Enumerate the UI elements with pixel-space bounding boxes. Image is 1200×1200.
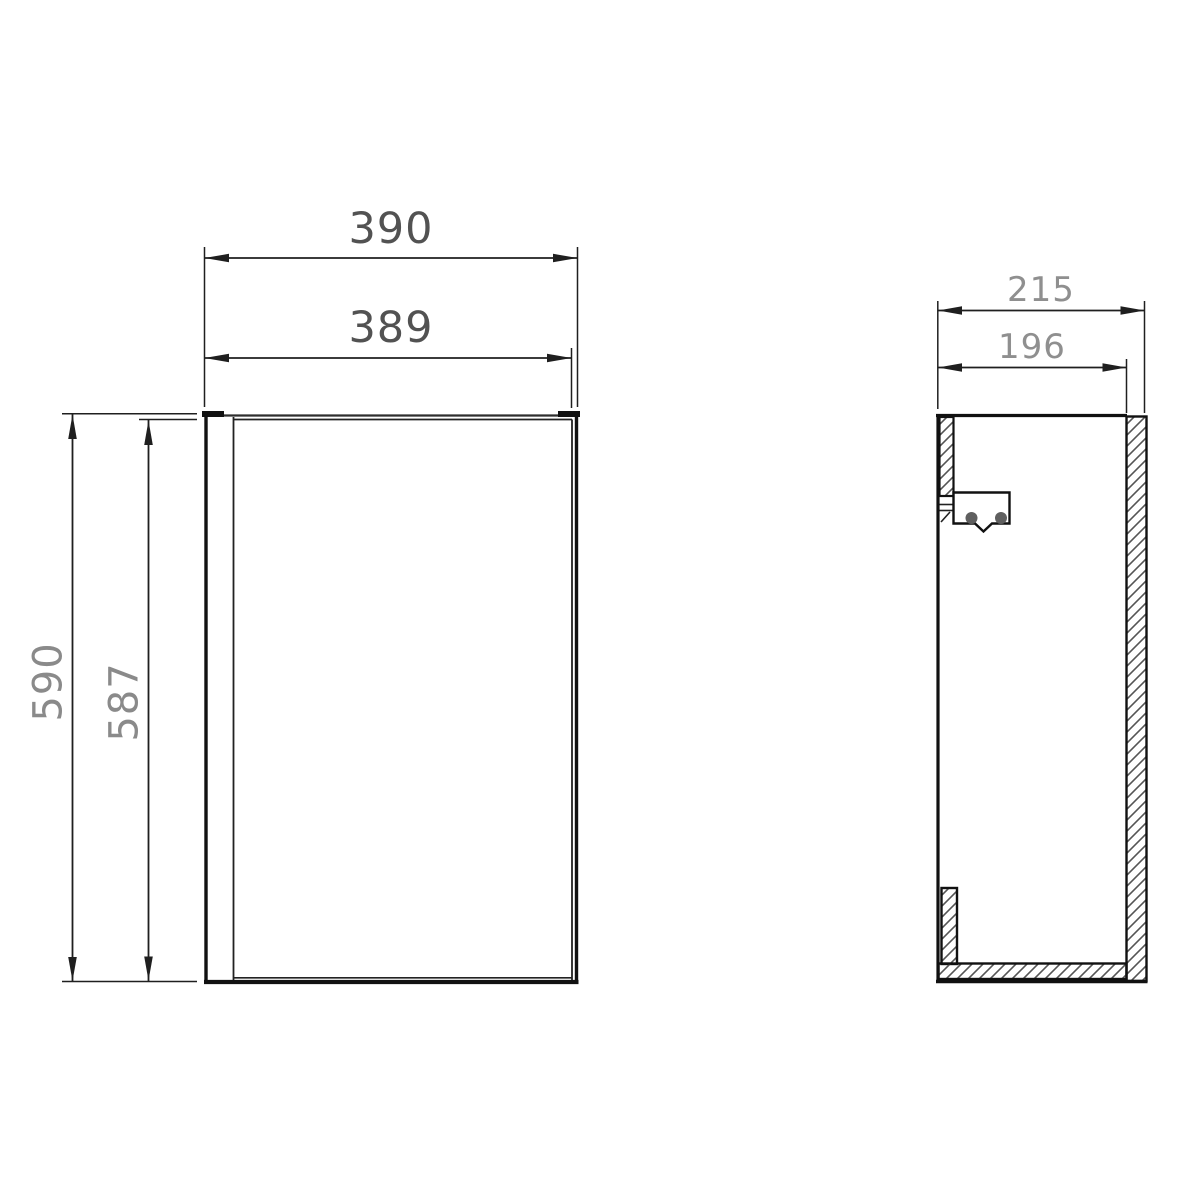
hinge-body (954, 493, 1010, 532)
side-bottom-panel-section (939, 964, 1127, 980)
dim-side-depth-inner: 196 (938, 327, 1127, 413)
dim-front-width-inner: 389 (205, 303, 572, 408)
dim-front-height-inner: 587 (102, 420, 198, 982)
arrow-down-icon (144, 957, 153, 981)
dim-value-front-width-inner: 389 (348, 303, 433, 353)
dim-value-side-depth-outer: 215 (1007, 270, 1075, 310)
dim-value-front-height-outer: 590 (26, 642, 72, 721)
side-view: 215 196 (936, 270, 1148, 982)
arrow-up-icon (68, 415, 77, 440)
technical-drawing-page: 390 389 590 587 (0, 0, 1200, 1200)
arrow-left-icon (938, 306, 962, 314)
arrow-down-icon (68, 957, 77, 981)
hinge-arm-line (941, 512, 950, 522)
side-door-top-section (940, 417, 954, 496)
arrow-right-icon (553, 254, 578, 262)
side-hinge-detail (940, 493, 1010, 532)
arrow-left-icon (205, 254, 230, 262)
hinge-screw-dot-right (995, 512, 1007, 524)
dim-value-front-width-outer: 390 (348, 204, 433, 254)
side-bottom-front-section (942, 888, 958, 964)
arrow-right-icon (1121, 306, 1145, 314)
arrow-left-icon (938, 363, 962, 371)
arrow-left-icon (205, 354, 230, 362)
cabinet-dimension-drawing: 390 389 590 587 (0, 0, 1200, 1200)
arrow-right-icon (547, 354, 572, 362)
dim-value-front-height-inner: 587 (102, 662, 148, 741)
hinge-screw-dot-left (966, 512, 978, 524)
front-view: 390 389 590 587 (26, 204, 581, 984)
arrow-right-icon (1103, 363, 1127, 371)
arrow-up-icon (144, 421, 153, 446)
dim-value-side-depth-inner: 196 (998, 327, 1066, 367)
side-back-panel-section (1127, 417, 1147, 982)
